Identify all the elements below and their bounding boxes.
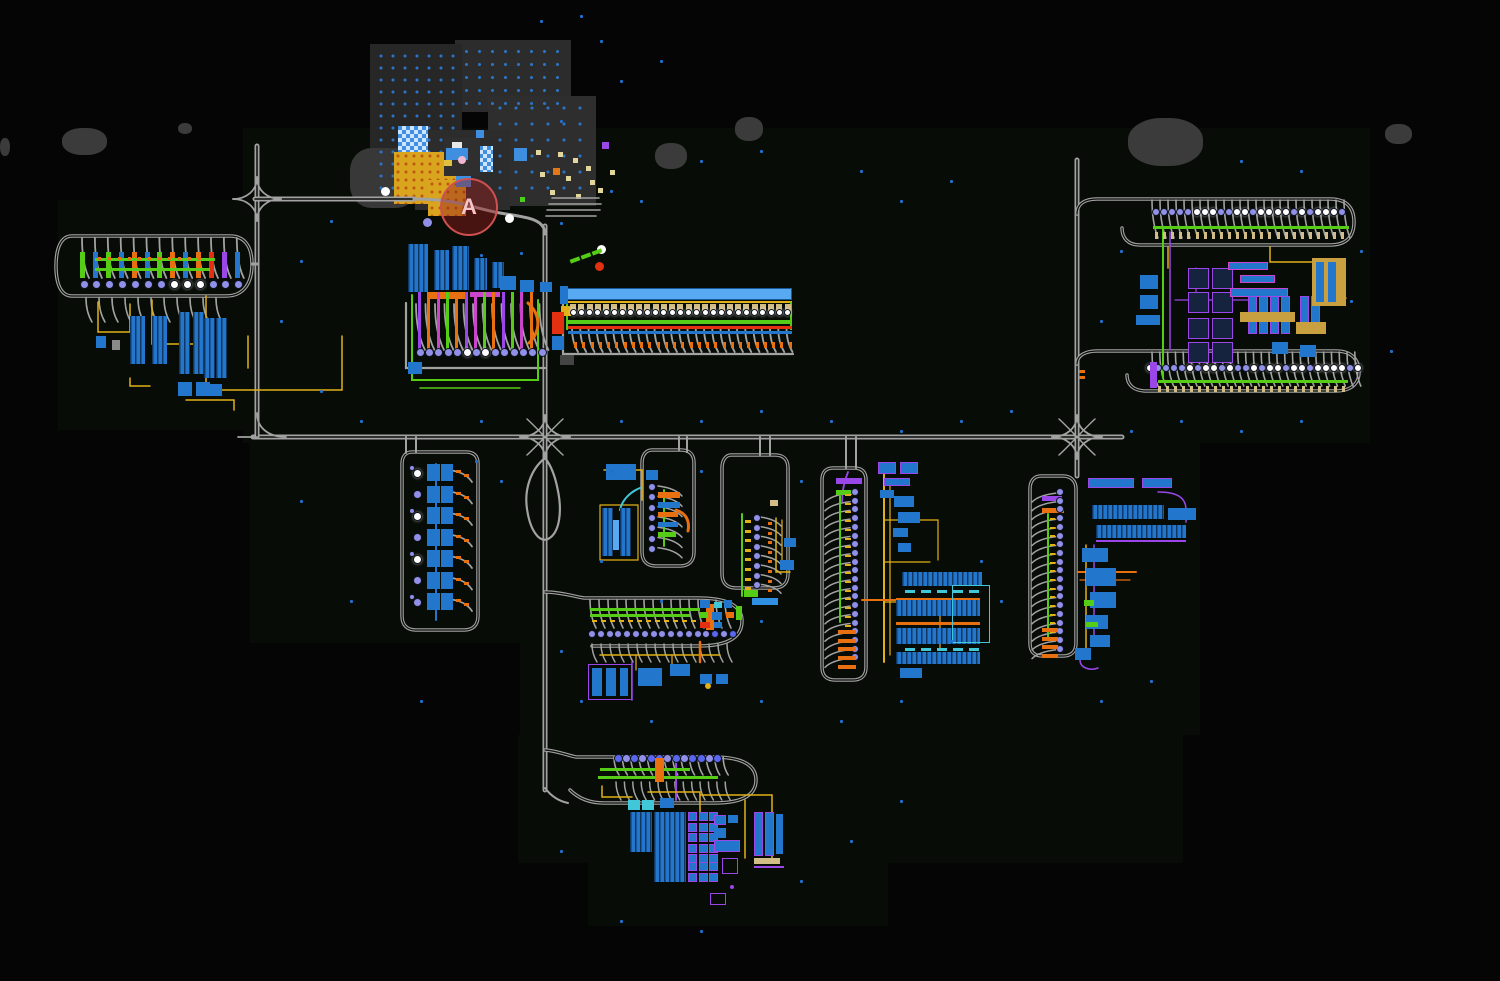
assembler-grid <box>688 873 697 882</box>
belt-items <box>178 257 181 260</box>
machine-rect <box>96 336 106 348</box>
inserter-bars <box>106 252 111 278</box>
tank <box>193 312 204 374</box>
machine-rect <box>714 602 722 608</box>
rail-line <box>1077 351 1359 391</box>
inserter-bars <box>145 252 150 278</box>
radar-blip <box>1350 300 1353 303</box>
rail-stub <box>1232 200 1238 238</box>
rail-stub <box>628 644 633 662</box>
belt-columns <box>483 292 486 354</box>
cargo-wagon <box>592 248 603 255</box>
concrete-pad <box>455 40 571 112</box>
circuit-outline-cyan <box>952 585 990 643</box>
train-stop-dots <box>453 348 462 357</box>
rail-stub <box>754 328 760 352</box>
rail-stub <box>1032 563 1057 572</box>
radar-blip <box>560 850 563 853</box>
concrete-pad <box>350 148 418 208</box>
rail-stub <box>825 519 850 528</box>
inserter-arrows <box>745 578 751 581</box>
inserter-dashes <box>655 620 660 622</box>
smelter-caps <box>686 304 692 311</box>
smelter-caps <box>661 304 667 311</box>
machine-rect <box>452 142 462 148</box>
rail-stub <box>1032 510 1057 519</box>
train-stop-dots <box>1330 208 1338 216</box>
radar-blip <box>1360 250 1363 253</box>
tan-debris <box>550 190 555 195</box>
rail-stub <box>653 600 659 628</box>
tank <box>613 520 619 550</box>
rail-stub <box>825 493 850 502</box>
belt-items <box>168 257 171 260</box>
belt-items-orange <box>456 492 461 495</box>
rail-stub <box>658 538 682 548</box>
rail-stub <box>718 644 723 662</box>
machine-column <box>427 507 440 524</box>
solar-field-dots <box>460 45 568 107</box>
train-stop-dots <box>1257 208 1265 216</box>
inserter-dashes <box>1204 232 1207 239</box>
assembler <box>1142 478 1172 488</box>
concrete-pad <box>370 44 462 202</box>
tank <box>130 316 145 364</box>
train-stop-dots <box>144 280 153 289</box>
inserter-dashes <box>845 590 851 592</box>
rail-stub <box>590 600 596 628</box>
inserter-dashes <box>1050 614 1055 616</box>
train-stop-dots <box>1186 364 1194 372</box>
smelter-caps <box>743 304 749 311</box>
train-stop-dots <box>851 619 859 627</box>
rail-stub <box>689 600 695 628</box>
radar-blip <box>660 600 663 603</box>
belt-items-orange <box>780 342 783 348</box>
belt-items <box>98 257 101 260</box>
rail-stub <box>662 600 668 628</box>
rail-stub <box>138 298 144 322</box>
belt-line-green <box>590 608 700 611</box>
belt-columns <box>455 292 458 354</box>
rail-stub <box>172 238 179 278</box>
train-stop-dots <box>80 280 89 289</box>
belt-items-orange <box>464 539 469 542</box>
rail-stub <box>164 298 170 322</box>
rail-stub <box>614 757 619 775</box>
belt-columns <box>446 292 449 354</box>
assembler-grid <box>709 812 718 821</box>
inserter-dashes <box>1171 232 1174 239</box>
radar-blip <box>280 320 283 323</box>
rail-stub <box>696 328 702 352</box>
radar-blip <box>560 120 563 123</box>
train-stop-dots <box>413 533 422 542</box>
radar-blip <box>860 170 863 173</box>
train-stop-dots <box>1056 592 1064 600</box>
machine-column <box>441 464 453 481</box>
train-stop-dots <box>1056 505 1064 513</box>
assembler-grid <box>1212 342 1233 363</box>
train-stop-dots <box>1338 364 1346 372</box>
rail-stub <box>610 644 615 662</box>
rail-stub <box>1246 352 1252 386</box>
rail-stub <box>1160 200 1166 238</box>
radar-blip <box>480 254 483 257</box>
radar-blip <box>580 700 583 703</box>
rail-stub <box>608 600 614 628</box>
rail-line <box>527 419 563 455</box>
rail-stub <box>658 486 682 496</box>
inserter-dashes <box>1220 232 1223 239</box>
starter-base <box>0 0 1500 981</box>
rail-line <box>520 437 545 459</box>
rail-stub <box>671 328 677 352</box>
train-stop-dots <box>1202 364 1210 372</box>
belt-band-red <box>568 326 792 329</box>
lamp-dots <box>627 309 634 316</box>
rail-stub <box>787 328 793 352</box>
belt-band-blue <box>568 331 792 334</box>
lamp-dots <box>578 309 585 316</box>
train-stop-dots <box>630 754 639 763</box>
radar-blip <box>1240 160 1243 163</box>
station-vertical-1 <box>0 0 1500 981</box>
belt-border-green <box>412 295 538 380</box>
radar-blip <box>600 40 603 43</box>
train-stop-dots <box>1265 208 1273 216</box>
lamp-dots <box>784 309 791 316</box>
unload-structure <box>1312 258 1346 306</box>
belt-columns <box>502 292 505 354</box>
train-stop-dots <box>851 566 859 574</box>
rail-stub <box>638 328 644 352</box>
machine-rect <box>606 668 616 696</box>
radar-blip <box>1100 320 1103 323</box>
machine-rect <box>1228 262 1268 270</box>
rail-stub <box>599 600 605 628</box>
smelter-caps <box>636 304 642 311</box>
belt-line-green <box>590 614 690 617</box>
belt-items-orange <box>615 342 618 348</box>
machine-rect <box>900 668 922 678</box>
rail-stub <box>444 513 472 525</box>
tan-debris <box>610 170 615 175</box>
rail-stub <box>125 298 131 322</box>
train-stop-dots <box>588 630 596 638</box>
terrain-patch <box>243 128 1370 443</box>
inserter-dashes <box>845 572 851 574</box>
tank <box>452 246 469 290</box>
rail-stub <box>825 658 850 667</box>
train-stop-dots <box>1226 364 1234 372</box>
belt-blob-green <box>744 590 758 597</box>
inserter-dashes <box>619 620 624 622</box>
belt-items <box>108 257 111 260</box>
inserter-dashes <box>1334 386 1337 392</box>
smelter-caps <box>603 304 609 311</box>
rail-stub <box>700 644 705 662</box>
inserter-arrows <box>745 568 751 571</box>
inserter-bars <box>170 252 175 278</box>
inserter-bars <box>235 252 240 278</box>
lamp-dots <box>677 309 684 316</box>
rail-stub <box>521 304 530 350</box>
rock-layer <box>0 0 1500 981</box>
train-stop-dots <box>1056 636 1064 644</box>
train-stop-dots <box>729 630 737 638</box>
train-stop-dots <box>1193 208 1201 216</box>
inserter-arrows <box>745 539 751 542</box>
smelter-caps <box>785 304 791 311</box>
belt-items <box>198 257 201 260</box>
assembler-grid <box>709 833 718 842</box>
lab-block-striped <box>654 812 686 882</box>
radar-blip <box>360 420 363 423</box>
chest-gold <box>561 306 571 316</box>
map-marker-a[interactable]: A <box>440 178 498 236</box>
radar-blip <box>1100 700 1103 703</box>
inserter-dashes <box>1302 386 1305 392</box>
rail-stub <box>729 328 735 352</box>
assembler <box>878 462 896 474</box>
train-stop-dots <box>1250 364 1258 372</box>
lamp-dots <box>735 309 742 316</box>
train-stop-dots <box>1330 364 1338 372</box>
train-stop-dots <box>851 523 859 531</box>
rail-stub <box>681 757 686 775</box>
radar-blip <box>840 720 843 723</box>
rail-stub <box>633 782 638 800</box>
inserter-dashes <box>845 616 851 618</box>
lamp-dots <box>759 309 766 316</box>
rail-stub <box>1339 352 1345 386</box>
rail-stub <box>762 328 768 352</box>
terrain-patch <box>250 443 1200 643</box>
rail-stub <box>825 528 850 537</box>
belt-items-orange <box>591 342 594 348</box>
radar-blip <box>610 470 613 473</box>
belt-items-orange <box>764 342 767 348</box>
rail-stub <box>717 782 722 800</box>
map-viewport[interactable]: A <box>0 0 1500 981</box>
belt-items-orange <box>599 342 602 348</box>
inserter-dashes <box>1301 232 1304 239</box>
belt-columns <box>418 292 421 354</box>
belt-items-orange <box>768 522 772 525</box>
belt-items-orange <box>768 580 772 583</box>
tank <box>602 508 613 556</box>
rail-stub <box>1285 352 1291 386</box>
machine-rect <box>560 355 574 365</box>
radar-blip <box>850 840 853 843</box>
train-stop-dots <box>1233 208 1241 216</box>
machine-rect <box>178 382 192 396</box>
yellow-floor <box>1240 312 1295 322</box>
train-stop-dots <box>1184 208 1192 216</box>
radar-blip <box>960 420 963 423</box>
rail-stub <box>224 238 231 278</box>
inserter-dashes <box>1050 588 1055 590</box>
inserter-dashes <box>1238 386 1241 392</box>
cyan-dashes <box>937 648 947 651</box>
machine-rect <box>784 538 796 547</box>
train-stop-dots <box>851 575 859 583</box>
belt-items-orange <box>456 470 461 473</box>
inserter-dashes <box>1325 232 1328 239</box>
train-stop-dots <box>1322 208 1330 216</box>
belt-items-orange <box>464 582 469 585</box>
train-stop-dots <box>221 280 230 289</box>
inserter-dashes <box>1286 386 1289 392</box>
inserter-dashes <box>1050 544 1055 546</box>
tank <box>434 250 449 290</box>
rail-stub <box>1272 200 1278 238</box>
belt-blob-green <box>1084 600 1094 606</box>
train-stop-dots <box>1056 488 1064 496</box>
train-stop-dots <box>851 653 859 661</box>
radar-blip <box>610 190 613 193</box>
machine-rect <box>210 384 222 396</box>
train-stop-dots <box>409 465 415 471</box>
train-stop-dots <box>650 630 658 638</box>
train-stop-dots <box>413 576 422 585</box>
radar-blip <box>620 920 623 923</box>
radar-blip <box>330 220 333 223</box>
rail-stub <box>426 304 435 350</box>
belt-items <box>128 257 131 260</box>
rail-stub <box>1032 502 1057 511</box>
belt-items-orange <box>698 342 701 348</box>
rail-stub <box>1264 200 1270 238</box>
machine-cluster <box>444 138 480 176</box>
train-stop-dots <box>1154 364 1162 372</box>
rail-stub <box>1256 200 1262 238</box>
assembler-box <box>588 664 632 700</box>
train-stop-dots <box>851 488 859 496</box>
rail-stub <box>1240 200 1246 238</box>
machine-rect <box>752 598 778 605</box>
rail-line-gap <box>402 452 478 630</box>
assembler-grid <box>709 873 718 882</box>
terrain-patch <box>58 200 248 430</box>
machine-rect <box>638 668 662 686</box>
radar-blip <box>600 560 603 563</box>
inserter-dashes <box>1277 232 1280 239</box>
rail-stub <box>444 535 472 547</box>
machine-rect <box>714 815 726 825</box>
belt-bar-green <box>836 490 858 495</box>
belt-items-orange <box>768 570 772 573</box>
inserter-dashes <box>1270 386 1273 392</box>
assembler-grid <box>1188 318 1209 339</box>
smelter-caps <box>587 304 593 311</box>
machine-rect <box>444 160 452 166</box>
rail-stub <box>1224 200 1230 238</box>
radar-blip <box>350 600 353 603</box>
inserter-dashes <box>1278 386 1281 392</box>
belt-items <box>118 257 121 260</box>
assembler-grid <box>709 823 718 832</box>
lab-block-striped <box>630 812 652 852</box>
station-west <box>0 0 1500 981</box>
train-stop-dots <box>183 280 192 289</box>
train-stop-dots <box>622 754 631 763</box>
rail-stub <box>1288 200 1294 238</box>
inserter-dashes <box>1228 232 1231 239</box>
inserter-dashes <box>592 620 597 622</box>
rail-stub <box>646 644 651 662</box>
belt-item <box>1079 376 1085 379</box>
assembler-grid <box>688 844 697 853</box>
belt-items <box>148 257 151 260</box>
belt-items-orange <box>747 342 750 348</box>
belt-line-green <box>600 768 690 771</box>
machine-rect <box>1140 295 1158 309</box>
belt-items-orange <box>768 560 772 563</box>
radar-blip <box>800 480 803 483</box>
rail-stub <box>86 298 92 322</box>
assembler-grid <box>709 862 718 871</box>
inserter-dashes <box>646 620 651 622</box>
machine-rect <box>500 276 516 290</box>
radar-blip <box>1300 170 1303 173</box>
machine-rect <box>1086 615 1108 629</box>
belt-line-green <box>598 776 718 779</box>
belt-items <box>188 257 191 260</box>
inserter-dashes <box>601 620 606 622</box>
furnace-red <box>552 312 564 334</box>
train-stop-dots <box>851 584 859 592</box>
rail-stub <box>673 757 678 775</box>
inserter-dashes <box>1050 622 1055 624</box>
belt-items-orange <box>772 342 775 348</box>
water-ghost-checker <box>398 126 428 152</box>
train-stop-dots <box>647 754 656 763</box>
inserter-arrows <box>745 520 751 523</box>
rail-line <box>520 415 545 437</box>
train-stop-dots <box>648 493 656 501</box>
assembler-grid <box>709 854 718 863</box>
train-stop-dots <box>105 280 114 289</box>
rail-line <box>56 236 252 296</box>
belt-line-orange <box>896 622 980 625</box>
rail-stub <box>454 304 463 350</box>
inserter-dashes <box>673 620 678 622</box>
rail-stub <box>648 757 653 775</box>
rail-stub <box>511 304 520 350</box>
rail-stub <box>444 599 472 611</box>
machine-rect <box>700 600 710 608</box>
station-horizontal-south <box>0 0 1500 981</box>
train-stop-dots <box>614 630 622 638</box>
smelter-caps <box>768 304 774 311</box>
rail-stub <box>663 328 669 352</box>
rail-stub <box>825 589 850 598</box>
rail-stub <box>82 238 89 278</box>
inserter-dashes <box>1318 386 1321 392</box>
belt-items-orange <box>464 517 469 520</box>
inserter-dashes <box>845 625 851 627</box>
train-stop-dots <box>1306 208 1314 216</box>
lamp-dots <box>652 309 659 316</box>
belt-line-yellow <box>566 301 792 303</box>
train-stop-dots <box>92 280 101 289</box>
train-stop-dots <box>131 280 140 289</box>
belt-items-orange <box>657 342 660 348</box>
inserter-dashes <box>1174 386 1177 392</box>
rail-line <box>257 413 286 437</box>
